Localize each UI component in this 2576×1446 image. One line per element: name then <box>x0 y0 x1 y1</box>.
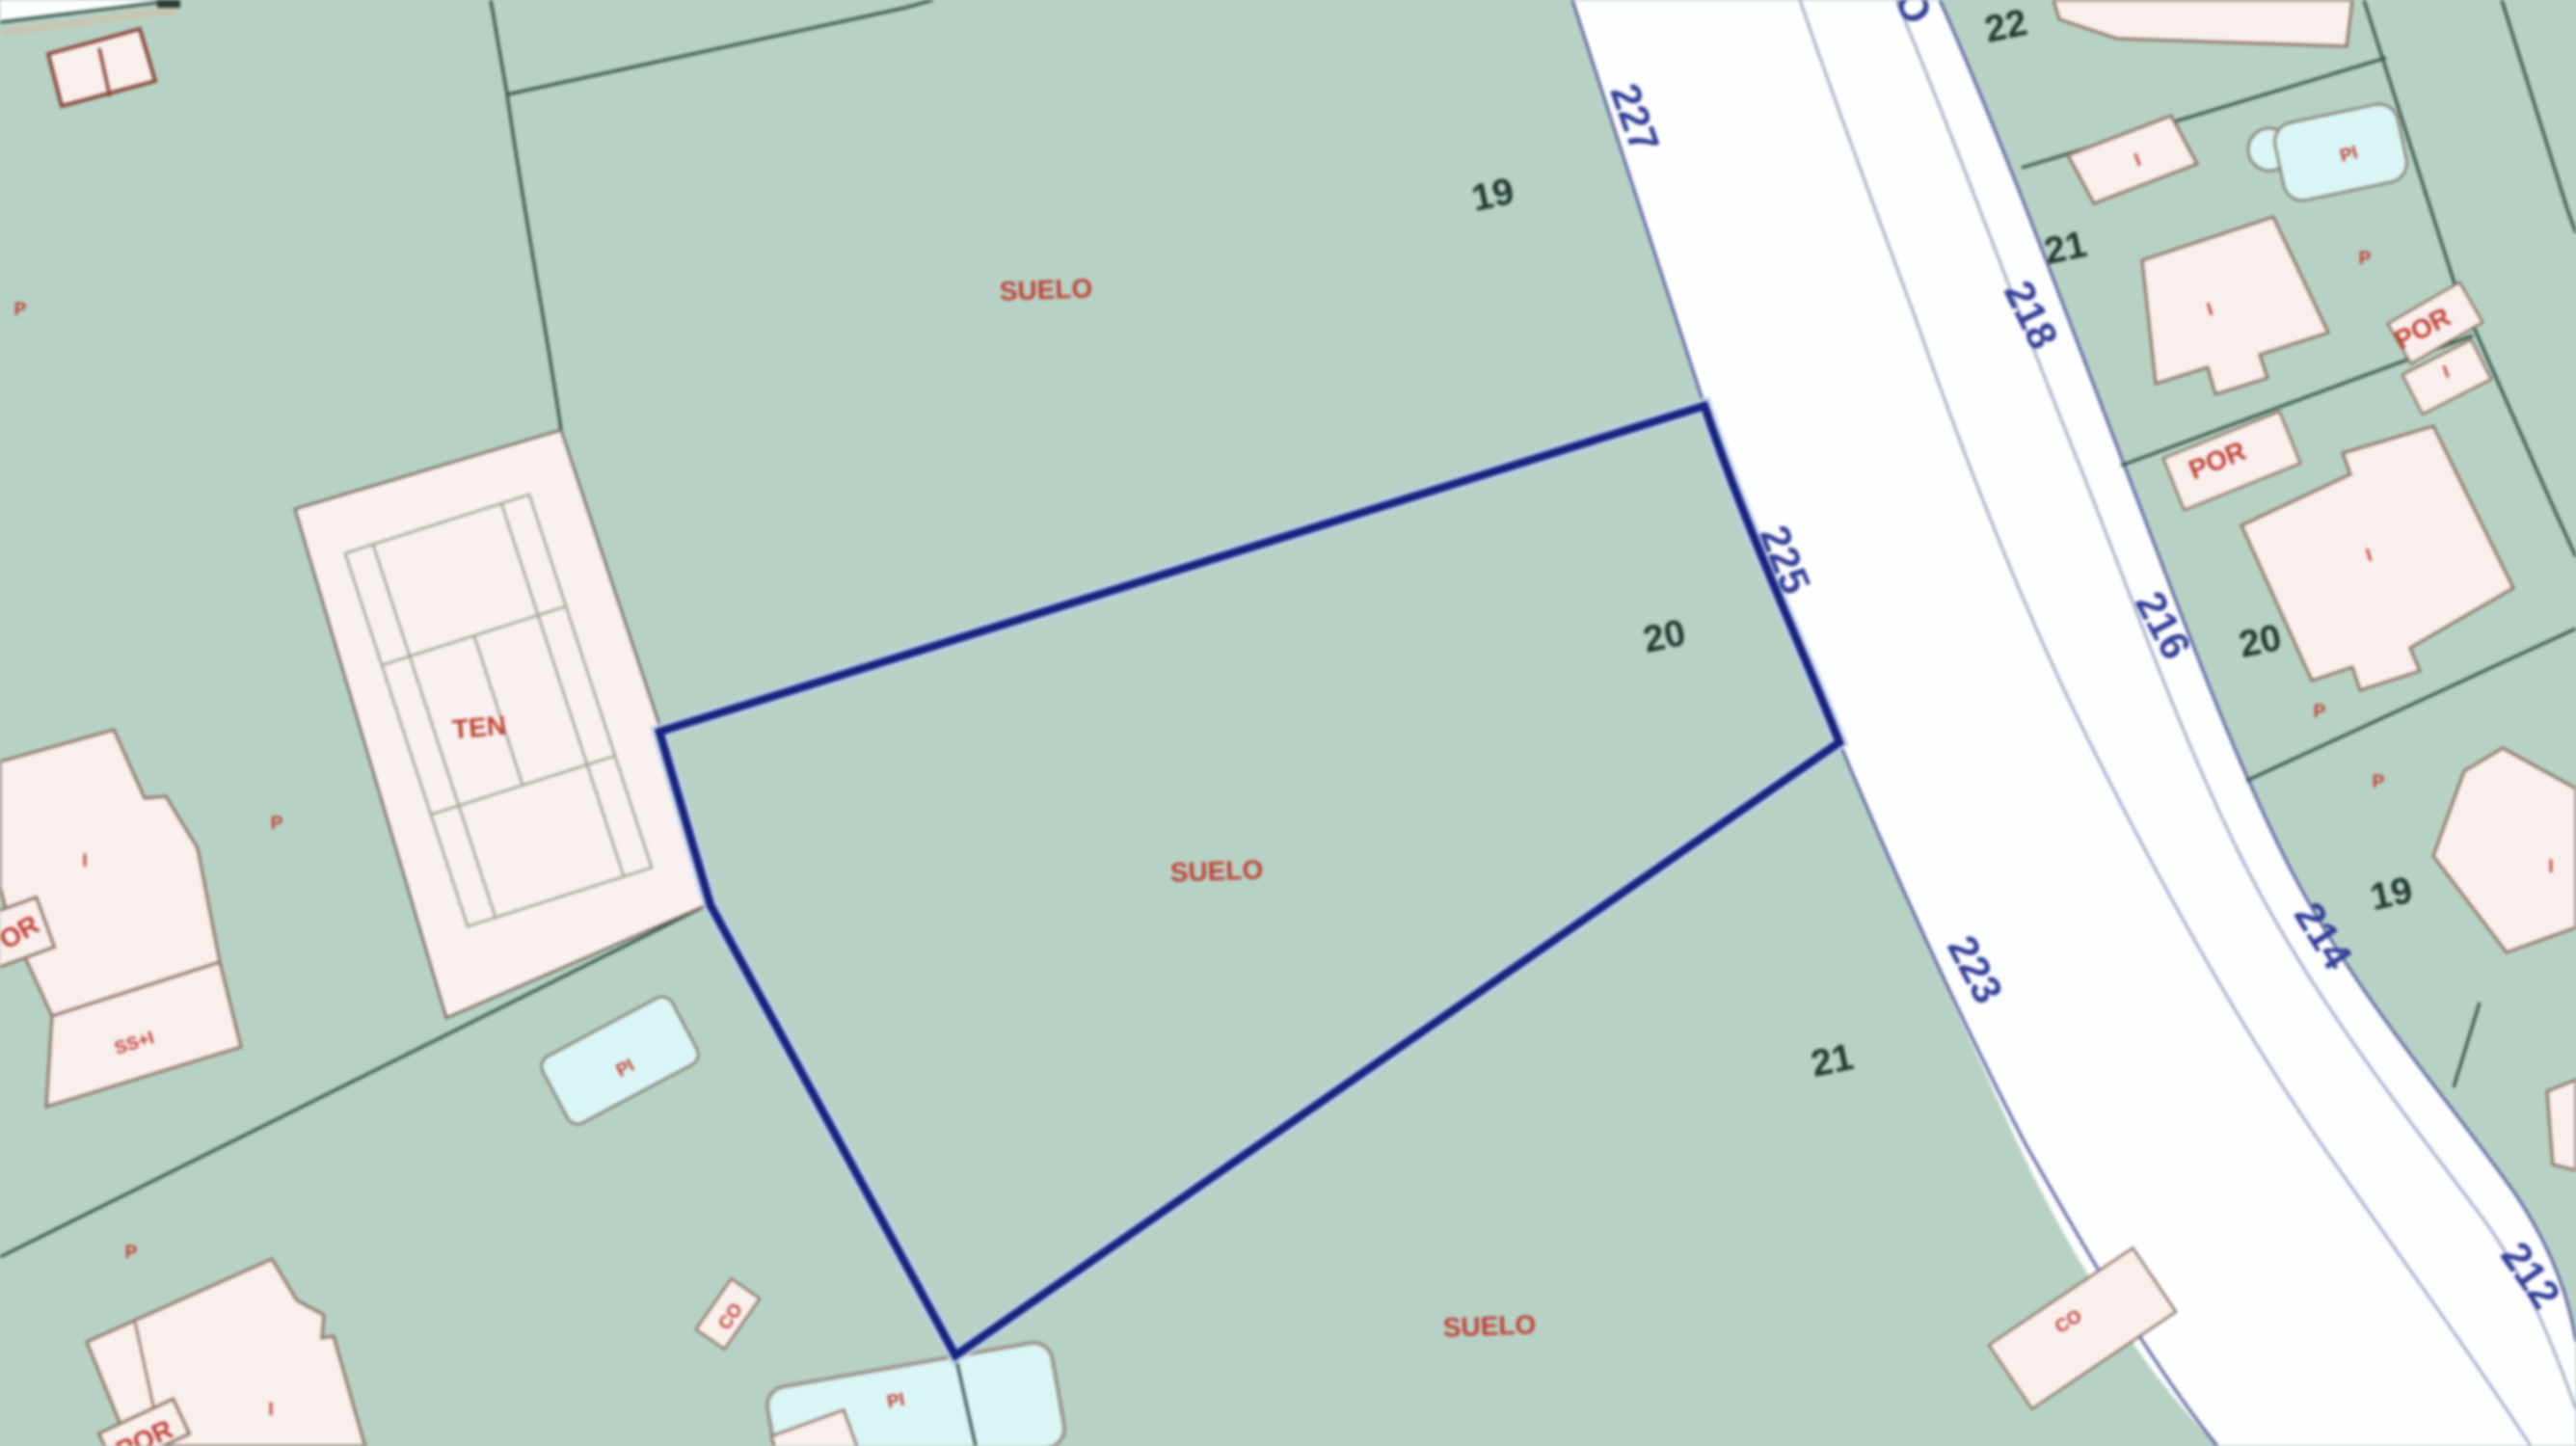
svg-text:I: I <box>268 1400 273 1420</box>
svg-text:SUELO: SUELO <box>1169 854 1263 887</box>
svg-text:P: P <box>125 1243 138 1263</box>
svg-text:21: 21 <box>1808 1036 1857 1085</box>
svg-text:SUELO: SUELO <box>999 273 1092 306</box>
svg-text:P: P <box>2314 702 2326 722</box>
svg-text:21: 21 <box>2041 224 2090 273</box>
svg-text:22: 22 <box>1981 2 2030 51</box>
svg-text:I: I <box>82 851 87 871</box>
svg-text:20: 20 <box>1640 612 1689 661</box>
svg-text:19: 19 <box>2367 870 2416 919</box>
svg-text:TEN: TEN <box>451 710 507 745</box>
svg-text:SUELO: SUELO <box>1442 1309 1536 1342</box>
svg-text:PI: PI <box>886 1390 906 1413</box>
svg-text:P: P <box>14 300 27 320</box>
svg-text:I: I <box>2548 857 2553 877</box>
svg-text:20: 20 <box>2236 617 2285 666</box>
svg-text:19: 19 <box>1468 171 1517 220</box>
svg-text:P: P <box>2359 249 2372 269</box>
svg-text:P: P <box>271 814 283 834</box>
svg-text:P: P <box>2373 772 2385 792</box>
